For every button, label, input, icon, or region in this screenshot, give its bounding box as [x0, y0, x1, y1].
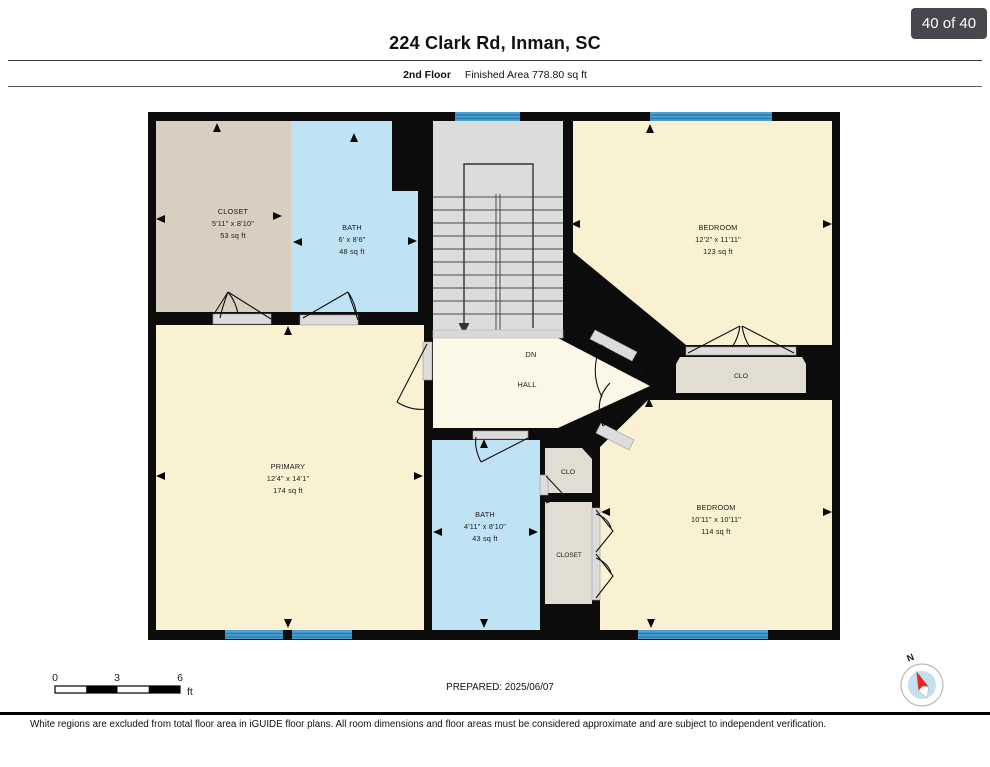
label-clo-bedroom: CLO	[734, 373, 748, 380]
svg-text:10'11" x 10'11": 10'11" x 10'11"	[691, 515, 741, 524]
door-threshold-primary	[423, 342, 432, 380]
svg-text:PRIMARY: PRIMARY	[271, 462, 306, 471]
svg-text:174 sq ft: 174 sq ft	[273, 486, 303, 495]
svg-text:BATH: BATH	[342, 223, 362, 232]
scale-tick-3: 3	[114, 672, 120, 684]
footer-divider	[0, 712, 990, 715]
svg-text:BEDROOM: BEDROOM	[696, 503, 735, 512]
label-bath-upper: BATH 6' x 8'6" 48 sq ft	[338, 223, 365, 256]
svg-text:48 sq ft: 48 sq ft	[339, 247, 365, 256]
door-threshold-clo-hall	[540, 475, 548, 495]
scale-unit: ft	[187, 686, 193, 698]
page-title: 224 Clark Rd, Inman, SC	[0, 33, 990, 54]
room-closet-upper	[156, 121, 310, 312]
disclaimer-text: White regions are excluded from total fl…	[30, 719, 960, 730]
scale-tick-0: 0	[52, 672, 58, 684]
door-threshold-clo-bedroom	[686, 347, 796, 355]
svg-text:114 sq ft: 114 sq ft	[701, 527, 730, 536]
floorplan-canvas: CLOSET 5'11" x 8'10" 53 sq ft BATH 6' x …	[140, 102, 845, 647]
subtitle-divider	[8, 86, 982, 87]
door-threshold-closet-upper	[213, 314, 271, 324]
door-threshold-bath-lower	[473, 431, 528, 439]
label-closet-lower: CLOSET	[556, 552, 582, 559]
door-threshold-bath-upper	[300, 315, 358, 325]
compass-north-label: N	[905, 652, 916, 665]
svg-text:53 sq ft: 53 sq ft	[220, 231, 246, 240]
floor-label: 2nd Floor	[403, 69, 451, 81]
svg-text:DN: DN	[526, 350, 537, 359]
svg-text:43 sq ft: 43 sq ft	[472, 534, 498, 543]
svg-text:12'4" x 14'1": 12'4" x 14'1"	[267, 474, 310, 483]
scale-bar: 0 3 6 ft	[45, 668, 215, 704]
label-clo-hall: CLO	[561, 469, 575, 476]
svg-text:HALL: HALL	[517, 380, 536, 389]
svg-text:CLOSET: CLOSET	[218, 207, 249, 216]
window-stairwell	[455, 112, 520, 121]
window-primary-left	[225, 630, 283, 639]
plan-subtitle: 2nd FloorFinished Area 778.80 sq ft	[0, 69, 990, 81]
svg-text:6' x 8'6": 6' x 8'6"	[338, 235, 365, 244]
prepared-date: PREPARED: 2025/06/07	[380, 682, 620, 693]
scale-tick-6: 6	[177, 672, 183, 684]
svg-text:123 sq ft: 123 sq ft	[703, 247, 733, 256]
floorplan-page: 40 of 40 224 Clark Rd, Inman, SC 2nd Flo…	[0, 0, 990, 767]
window-bedroom-lower	[638, 630, 768, 639]
finished-area-label: Finished Area 778.80 sq ft	[465, 69, 587, 81]
svg-text:5'11" x 8'10": 5'11" x 8'10"	[212, 219, 254, 228]
svg-text:12'2" x 11'11": 12'2" x 11'11"	[695, 235, 741, 244]
svg-text:4'11" x 8'10": 4'11" x 8'10"	[464, 522, 506, 531]
compass: N	[894, 648, 950, 710]
stair-landing-threshold	[433, 330, 563, 338]
svg-text:BATH: BATH	[475, 510, 495, 519]
svg-text:BEDROOM: BEDROOM	[698, 223, 737, 232]
stairwell	[433, 121, 563, 330]
window-primary-right	[292, 630, 352, 639]
window-bedroom-upper	[650, 112, 772, 121]
title-divider	[8, 60, 982, 61]
